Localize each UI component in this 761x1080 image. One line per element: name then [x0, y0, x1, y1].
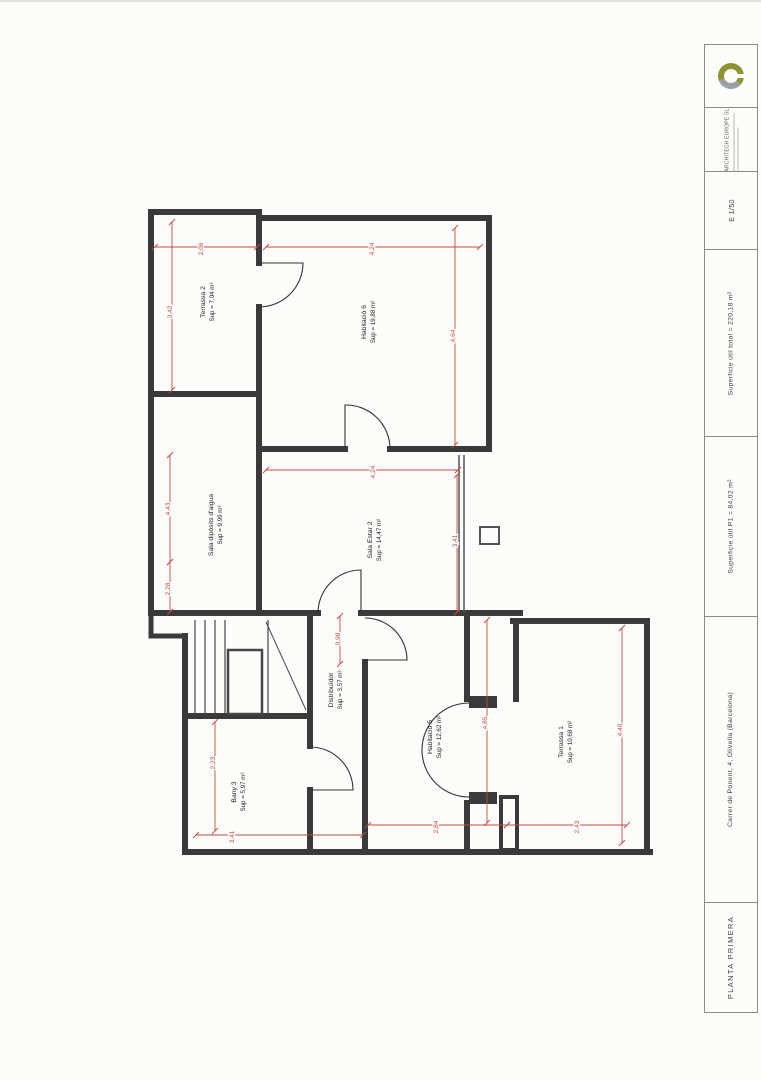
dimension-value: 0,98	[335, 632, 342, 645]
room-name: Terrassa 1	[558, 726, 565, 758]
dimension-value: 3,41	[452, 534, 459, 547]
dimension: 2,23	[210, 719, 218, 834]
room-label-terrassa-1: Terrassa 1Sup = 10,68 m²	[558, 721, 574, 763]
wall-terrassa1-right-top	[513, 621, 647, 852]
stair-treads	[195, 620, 268, 714]
dimension-value: 4,64	[450, 329, 457, 342]
floor-plan-drawing: 2,064,243,424,432,284,644,243,410,982,23…	[0, 0, 761, 1080]
project-address: Carrer de Ponent, 4, Olivella (Barcelona…	[728, 692, 735, 827]
dimension: 2,43	[504, 820, 630, 833]
svg-text:Sala Estar 2Sup = 14,47 m²: Sala Estar 2Sup = 14,47 m²	[367, 519, 383, 561]
dimension-value: 2,84	[433, 820, 440, 833]
door-habitacio6	[345, 405, 390, 449]
room-area: Sup = 19,88 m²	[370, 301, 377, 343]
svg-text:DistribuïdorSup = 3,57 m²: DistribuïdorSup = 3,57 m²	[328, 670, 344, 709]
stair-break-line	[266, 622, 306, 710]
title-block-total-area-cell: Superficie útil total = 220,18 m²	[705, 250, 757, 437]
stair-core	[228, 650, 262, 714]
dimension-value: 4,85	[482, 716, 489, 729]
door-terrassa2-habitacio6	[259, 263, 303, 307]
dimension-value: 2,43	[574, 820, 581, 833]
dimension-value: 4,24	[370, 465, 377, 478]
dimension-value: 4,43	[165, 502, 172, 515]
room-label-bany-3: Bany 3Sup = 5,97 m²	[231, 772, 247, 811]
room-name: Habitació 5	[427, 720, 434, 754]
total-useful-area: Superficie útil total = 220,18 m²	[728, 291, 735, 395]
room-area: Sup = 7,04 m²	[209, 282, 216, 321]
room-label-sala-diposits: Sala dipòsits d'aiguaSup = 9,99 m²	[208, 494, 224, 556]
dimension-value: 2,28	[165, 582, 172, 595]
room-area: Sup = 9,99 m²	[217, 505, 224, 544]
room-name: Sala Estar 2	[367, 521, 374, 558]
dimension: 4,24	[263, 242, 483, 255]
windows	[459, 455, 499, 612]
walls	[151, 212, 650, 852]
dimension: 4,40	[617, 625, 625, 846]
room-label-terrassa-2: Terrassa 2Sup = 7,04 m²	[200, 282, 216, 321]
dimension: 4,64	[450, 225, 458, 448]
svg-text:Terrassa 2Sup = 7,04 m²: Terrassa 2Sup = 7,04 m²	[200, 282, 216, 321]
dimension-value: 4,40	[617, 723, 624, 736]
dimension-value: 2,23	[210, 756, 217, 769]
dimension: 4,24	[263, 465, 461, 478]
scanned-floor-plan-sheet: { "title_block": { "company": "ARCHITECH…	[0, 0, 761, 1080]
room-area: Sup = 12,62 m²	[436, 716, 443, 758]
company-logo-icon	[718, 63, 744, 89]
company-address-microtext	[733, 113, 735, 171]
door-sala-estar2	[318, 570, 361, 613]
title-block-scale-cell: E 1/50	[705, 172, 757, 250]
room-label-habitacio-5: Habitació 5Sup = 12,62 m²	[427, 716, 443, 758]
door-leaf-lower	[469, 792, 497, 804]
room-label-sala-estar-2: Sala Estar 2Sup = 14,47 m²	[367, 519, 383, 561]
plan-name: PLANTA PRIMERA	[727, 916, 736, 999]
title-block: ARCHITECH EUROPE SL E 1/50 Superficie út…	[704, 44, 758, 1013]
title-block-company-cell: ARCHITECH EUROPE SL	[705, 108, 757, 172]
company-name: ARCHITECH EUROPE SL	[724, 108, 730, 171]
room-area: Sup = 14,47 m²	[376, 519, 383, 561]
room-label-distribuidor: DistribuïdorSup = 3,57 m²	[328, 670, 344, 709]
title-block-logo-cell	[705, 45, 757, 108]
title-block-p1-area-cell: Superficie útil P1 = 84,02 m²	[705, 437, 757, 617]
wall-lower-left-bottom	[185, 636, 650, 852]
title-block-address-cell: Carrer de Ponent, 4, Olivella (Barcelona…	[705, 617, 757, 903]
pillar-sala-estar	[480, 527, 499, 544]
svg-text:Habitació 6Sup = 19,88 m²: Habitació 6Sup = 19,88 m²	[361, 301, 377, 343]
company-phone-microtext	[737, 127, 739, 171]
title-block-plan-name-cell: PLANTA PRIMERA	[705, 903, 757, 1012]
door-habitacio5	[365, 618, 407, 660]
dimension-value: 4,24	[369, 242, 376, 255]
dimension: 3,42	[167, 219, 175, 393]
dimension: 3,41	[193, 830, 366, 843]
room-area: Sup = 10,68 m²	[567, 721, 574, 763]
svg-text:Habitació 5Sup = 12,62 m²: Habitació 5Sup = 12,62 m²	[427, 716, 443, 758]
svg-text:Terrassa 1Sup = 10,68 m²: Terrassa 1Sup = 10,68 m²	[558, 721, 574, 763]
room-name: Habitació 6	[361, 305, 368, 339]
room-name: Terrassa 2	[200, 286, 207, 318]
room-area: Sup = 5,97 m²	[240, 772, 247, 811]
svg-text:Sala dipòsits d'aiguaSup = 9,9: Sala dipòsits d'aiguaSup = 9,99 m²	[208, 494, 224, 556]
dimension: 0,98	[335, 613, 343, 667]
door-leaf-upper	[469, 696, 497, 708]
logo-notch	[734, 74, 745, 78]
dimension: 2,06	[152, 242, 260, 255]
dimension-value: 2,06	[198, 242, 205, 255]
room-name: Sala dipòsits d'aigua	[208, 494, 215, 556]
wall-terrassa2-left-top	[151, 212, 257, 612]
stairs	[195, 620, 306, 714]
room-name: Distribuïdor	[328, 672, 335, 707]
dimension: 4,43	[165, 452, 173, 565]
paper-background: 2,064,243,424,432,284,644,243,410,982,23…	[0, 0, 761, 1080]
wall-left-step	[151, 613, 185, 636]
dimension-value: 3,42	[167, 305, 174, 318]
drawing-scale: E 1/50	[727, 199, 736, 222]
p1-useful-area: Superficie útil P1 = 84,02 m²	[728, 479, 735, 573]
door-bany3	[310, 747, 353, 790]
room-label-habitacio-6: Habitació 6Sup = 19,88 m²	[361, 301, 377, 343]
room-area: Sup = 3,57 m²	[337, 670, 344, 709]
dimension-value: 3,41	[229, 830, 236, 843]
company-info: ARCHITECH EUROPE SL	[724, 108, 738, 171]
svg-text:Bany 3Sup = 5,97 m²: Bany 3Sup = 5,97 m²	[231, 772, 247, 811]
dimension: 2,28	[165, 559, 173, 615]
room-name: Bany 3	[231, 781, 238, 802]
